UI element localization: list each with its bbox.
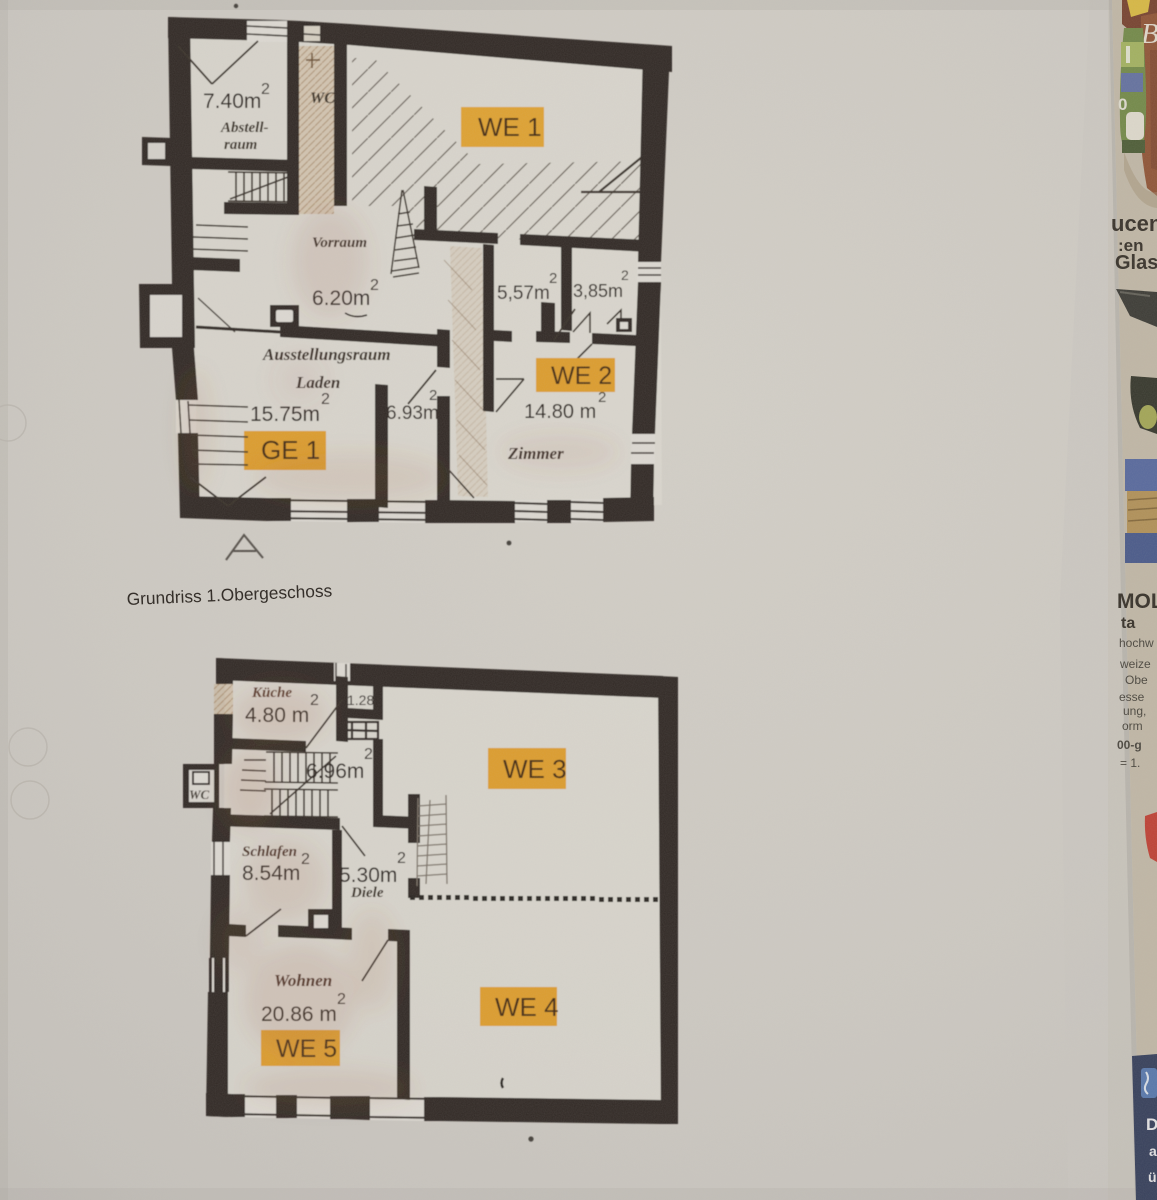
svg-text:2: 2	[397, 850, 406, 867]
svg-text:WE 4: WE 4	[495, 992, 559, 1022]
svg-text:2: 2	[549, 270, 557, 287]
svg-text:2: 2	[370, 277, 379, 294]
svg-text:14.80 m: 14.80 m	[524, 401, 596, 423]
svg-text:2: 2	[261, 81, 270, 98]
svg-text:WC: WC	[310, 90, 335, 107]
svg-text:6.93m: 6.93m	[386, 403, 439, 424]
svg-text:WC: WC	[189, 787, 210, 802]
svg-text:WE 1: WE 1	[478, 112, 542, 142]
svg-text:5,57m: 5,57m	[497, 283, 550, 304]
svg-text:Diele: Diele	[350, 885, 384, 901]
svg-text:WE 3: WE 3	[503, 754, 567, 784]
svg-text:15.75m: 15.75m	[250, 403, 320, 426]
svg-text:2: 2	[621, 267, 629, 283]
svg-text:6.96m: 6.96m	[306, 760, 364, 783]
svg-text:2: 2	[598, 389, 606, 406]
svg-text:raum: raum	[224, 137, 257, 153]
svg-text:3,85m: 3,85m	[573, 281, 623, 301]
svg-text:5.30m: 5.30m	[339, 864, 397, 887]
svg-text:2: 2	[429, 387, 437, 404]
svg-text:1.28: 1.28	[347, 692, 374, 708]
svg-text:7.40m: 7.40m	[203, 90, 261, 113]
svg-text:2: 2	[364, 746, 373, 763]
svg-text:Abstell-: Abstell-	[220, 120, 269, 136]
svg-text:WE 2: WE 2	[551, 362, 612, 390]
